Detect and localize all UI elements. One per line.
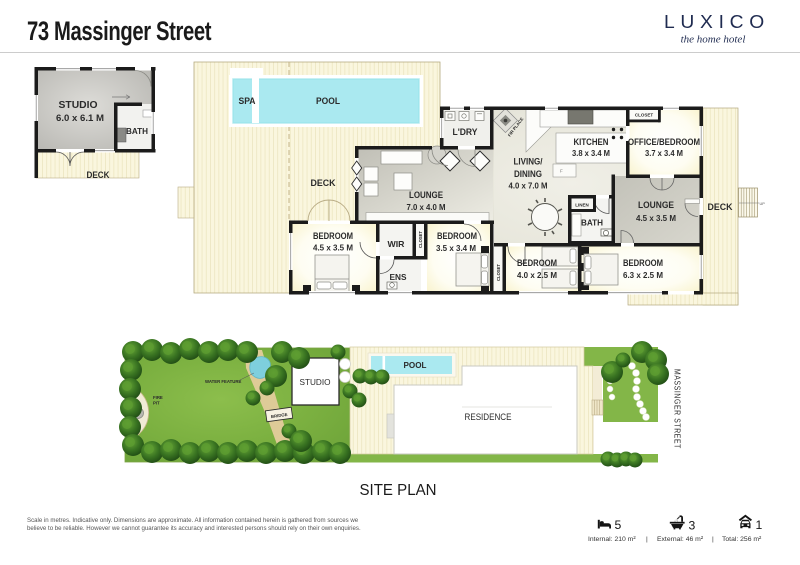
- svg-text:External: 46 m²: External: 46 m²: [657, 536, 704, 543]
- svg-text:BATH: BATH: [126, 126, 148, 136]
- svg-text:PIT: PIT: [153, 401, 160, 406]
- svg-text:BEDROOM: BEDROOM: [623, 258, 663, 268]
- svg-text:SITE PLAN: SITE PLAN: [360, 482, 437, 499]
- svg-text:CLOSET: CLOSET: [418, 231, 423, 248]
- svg-text:5: 5: [615, 518, 622, 532]
- svg-text:DINING: DINING: [514, 169, 542, 179]
- svg-text:CLOSET: CLOSET: [635, 113, 654, 118]
- svg-text:POOL: POOL: [404, 361, 427, 370]
- svg-text:BEDROOM: BEDROOM: [313, 231, 353, 241]
- svg-text:BEDROOM: BEDROOM: [437, 231, 477, 241]
- svg-text:SPA: SPA: [239, 96, 256, 106]
- svg-text:STUDIO: STUDIO: [59, 100, 98, 111]
- svg-text:LIVING/: LIVING/: [514, 157, 543, 167]
- svg-text:6.0 x 6.1 M: 6.0 x 6.1 M: [56, 113, 104, 124]
- svg-text:4.0 x 2.5 M: 4.0 x 2.5 M: [517, 270, 557, 280]
- svg-text:FIRE: FIRE: [153, 395, 163, 400]
- svg-text:DECK: DECK: [708, 202, 733, 213]
- svg-text:LOUNGE: LOUNGE: [638, 200, 674, 210]
- svg-text:STUDIO: STUDIO: [300, 377, 331, 387]
- svg-text:3.8 x 3.4 M: 3.8 x 3.4 M: [572, 148, 610, 158]
- svg-text:Total: 256 m²: Total: 256 m²: [722, 536, 762, 543]
- svg-text:believe to be reliable. Howev: believe to be reliable. However we canno…: [27, 525, 361, 532]
- svg-text:1: 1: [756, 518, 763, 532]
- svg-text:DECK: DECK: [311, 178, 336, 189]
- svg-text:3.5 x 3.4 M: 3.5 x 3.4 M: [436, 243, 476, 253]
- svg-text:73 Massinger Street: 73 Massinger Street: [27, 16, 212, 47]
- svg-text:ENS: ENS: [390, 272, 407, 282]
- svg-text:the home hotel: the home hotel: [681, 34, 746, 46]
- svg-text:4.5 x 3.5 M: 4.5 x 3.5 M: [313, 243, 353, 253]
- svg-text:6.3 x 2.5 M: 6.3 x 2.5 M: [623, 270, 663, 280]
- svg-text:WATER FEATURE: WATER FEATURE: [205, 379, 241, 384]
- svg-text:BEDROOM: BEDROOM: [517, 258, 557, 268]
- svg-text:CLOSET: CLOSET: [496, 264, 501, 281]
- svg-text:LOUNGE: LOUNGE: [409, 190, 443, 200]
- svg-text:KITCHEN: KITCHEN: [574, 137, 609, 147]
- svg-text:RESIDENCE: RESIDENCE: [465, 412, 512, 423]
- svg-text:7.0 x 4.0 M: 7.0 x 4.0 M: [407, 202, 446, 212]
- svg-text:POOL: POOL: [316, 96, 340, 106]
- svg-text:4.0 x 7.0 M: 4.0 x 7.0 M: [509, 181, 548, 191]
- svg-text:F: F: [560, 169, 563, 174]
- svg-text:Scale in metres. Indicative o: Scale in metres. Indicative only. Dimens…: [27, 517, 359, 524]
- svg-text:MASSINGER STREET: MASSINGER STREET: [673, 369, 682, 449]
- svg-text:UP: UP: [760, 202, 766, 206]
- svg-text:OFFICE/BEDROOM: OFFICE/BEDROOM: [628, 137, 700, 147]
- svg-text:LINEN: LINEN: [575, 203, 589, 208]
- svg-text:LUXICO: LUXICO: [664, 11, 770, 32]
- svg-text:3: 3: [689, 519, 696, 533]
- svg-text:4.5 x 3.5 M: 4.5 x 3.5 M: [636, 213, 676, 223]
- svg-text:DECK: DECK: [87, 170, 110, 180]
- svg-text:|: |: [646, 536, 648, 543]
- svg-text:|: |: [712, 536, 714, 543]
- svg-text:Internal: 210 m²: Internal: 210 m²: [588, 536, 636, 543]
- svg-text:BATH: BATH: [581, 218, 603, 228]
- svg-text:3.7 x 3.4 M: 3.7 x 3.4 M: [645, 148, 683, 158]
- svg-text:L'DRY: L'DRY: [453, 127, 478, 137]
- svg-text:WIR: WIR: [388, 239, 405, 249]
